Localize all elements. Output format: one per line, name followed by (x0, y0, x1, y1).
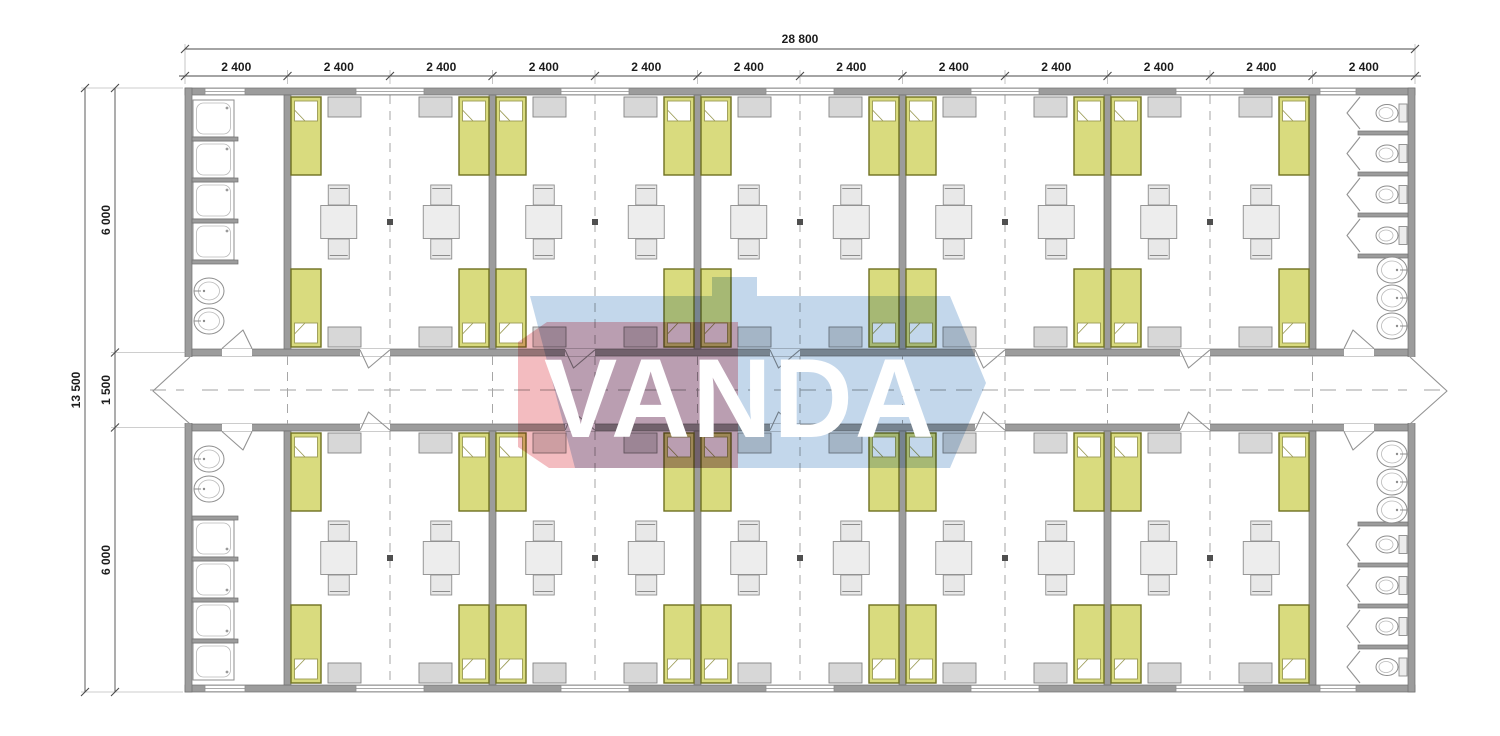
dim-left-seg-1: 6 000 (99, 205, 113, 235)
dim-top-seg-7: 2 400 (836, 60, 866, 74)
dim-top-seg-6: 2 400 (734, 60, 764, 74)
washroom-top-left (192, 88, 252, 356)
dim-top-seg-1: 2 400 (221, 60, 251, 74)
dim-top-seg-8: 2 400 (939, 60, 969, 74)
dim-top-seg-5: 2 400 (631, 60, 661, 74)
dim-top-seg-9: 2 400 (1041, 60, 1071, 74)
dim-left-seg-3: 6 000 (99, 545, 113, 575)
dim-top-seg-3: 2 400 (426, 60, 456, 74)
watermark-text: VANDA (544, 336, 936, 461)
dim-left-seg-2: 1 500 (99, 375, 113, 405)
dim-overall-height: 13 500 (69, 371, 83, 408)
floor-plan-page: 28 800 2 400 2 400 2 400 2 400 2 400 2 4… (0, 0, 1500, 736)
dim-top-seg-12: 2 400 (1349, 60, 1379, 74)
watermark-logo: VANDA (518, 277, 986, 468)
dim-top-seg-4: 2 400 (529, 60, 559, 74)
washroom-bottom-left (192, 424, 252, 692)
washroom-top-right (1320, 88, 1408, 356)
dim-top-seg-10: 2 400 (1144, 60, 1174, 74)
dim-top-seg-11: 2 400 (1246, 60, 1276, 74)
washroom-bottom-right (1320, 424, 1408, 692)
dim-top-seg-2: 2 400 (324, 60, 354, 74)
dim-overall-width: 28 800 (782, 32, 819, 46)
floor-plan-drawing: 28 800 2 400 2 400 2 400 2 400 2 400 2 4… (0, 0, 1500, 736)
